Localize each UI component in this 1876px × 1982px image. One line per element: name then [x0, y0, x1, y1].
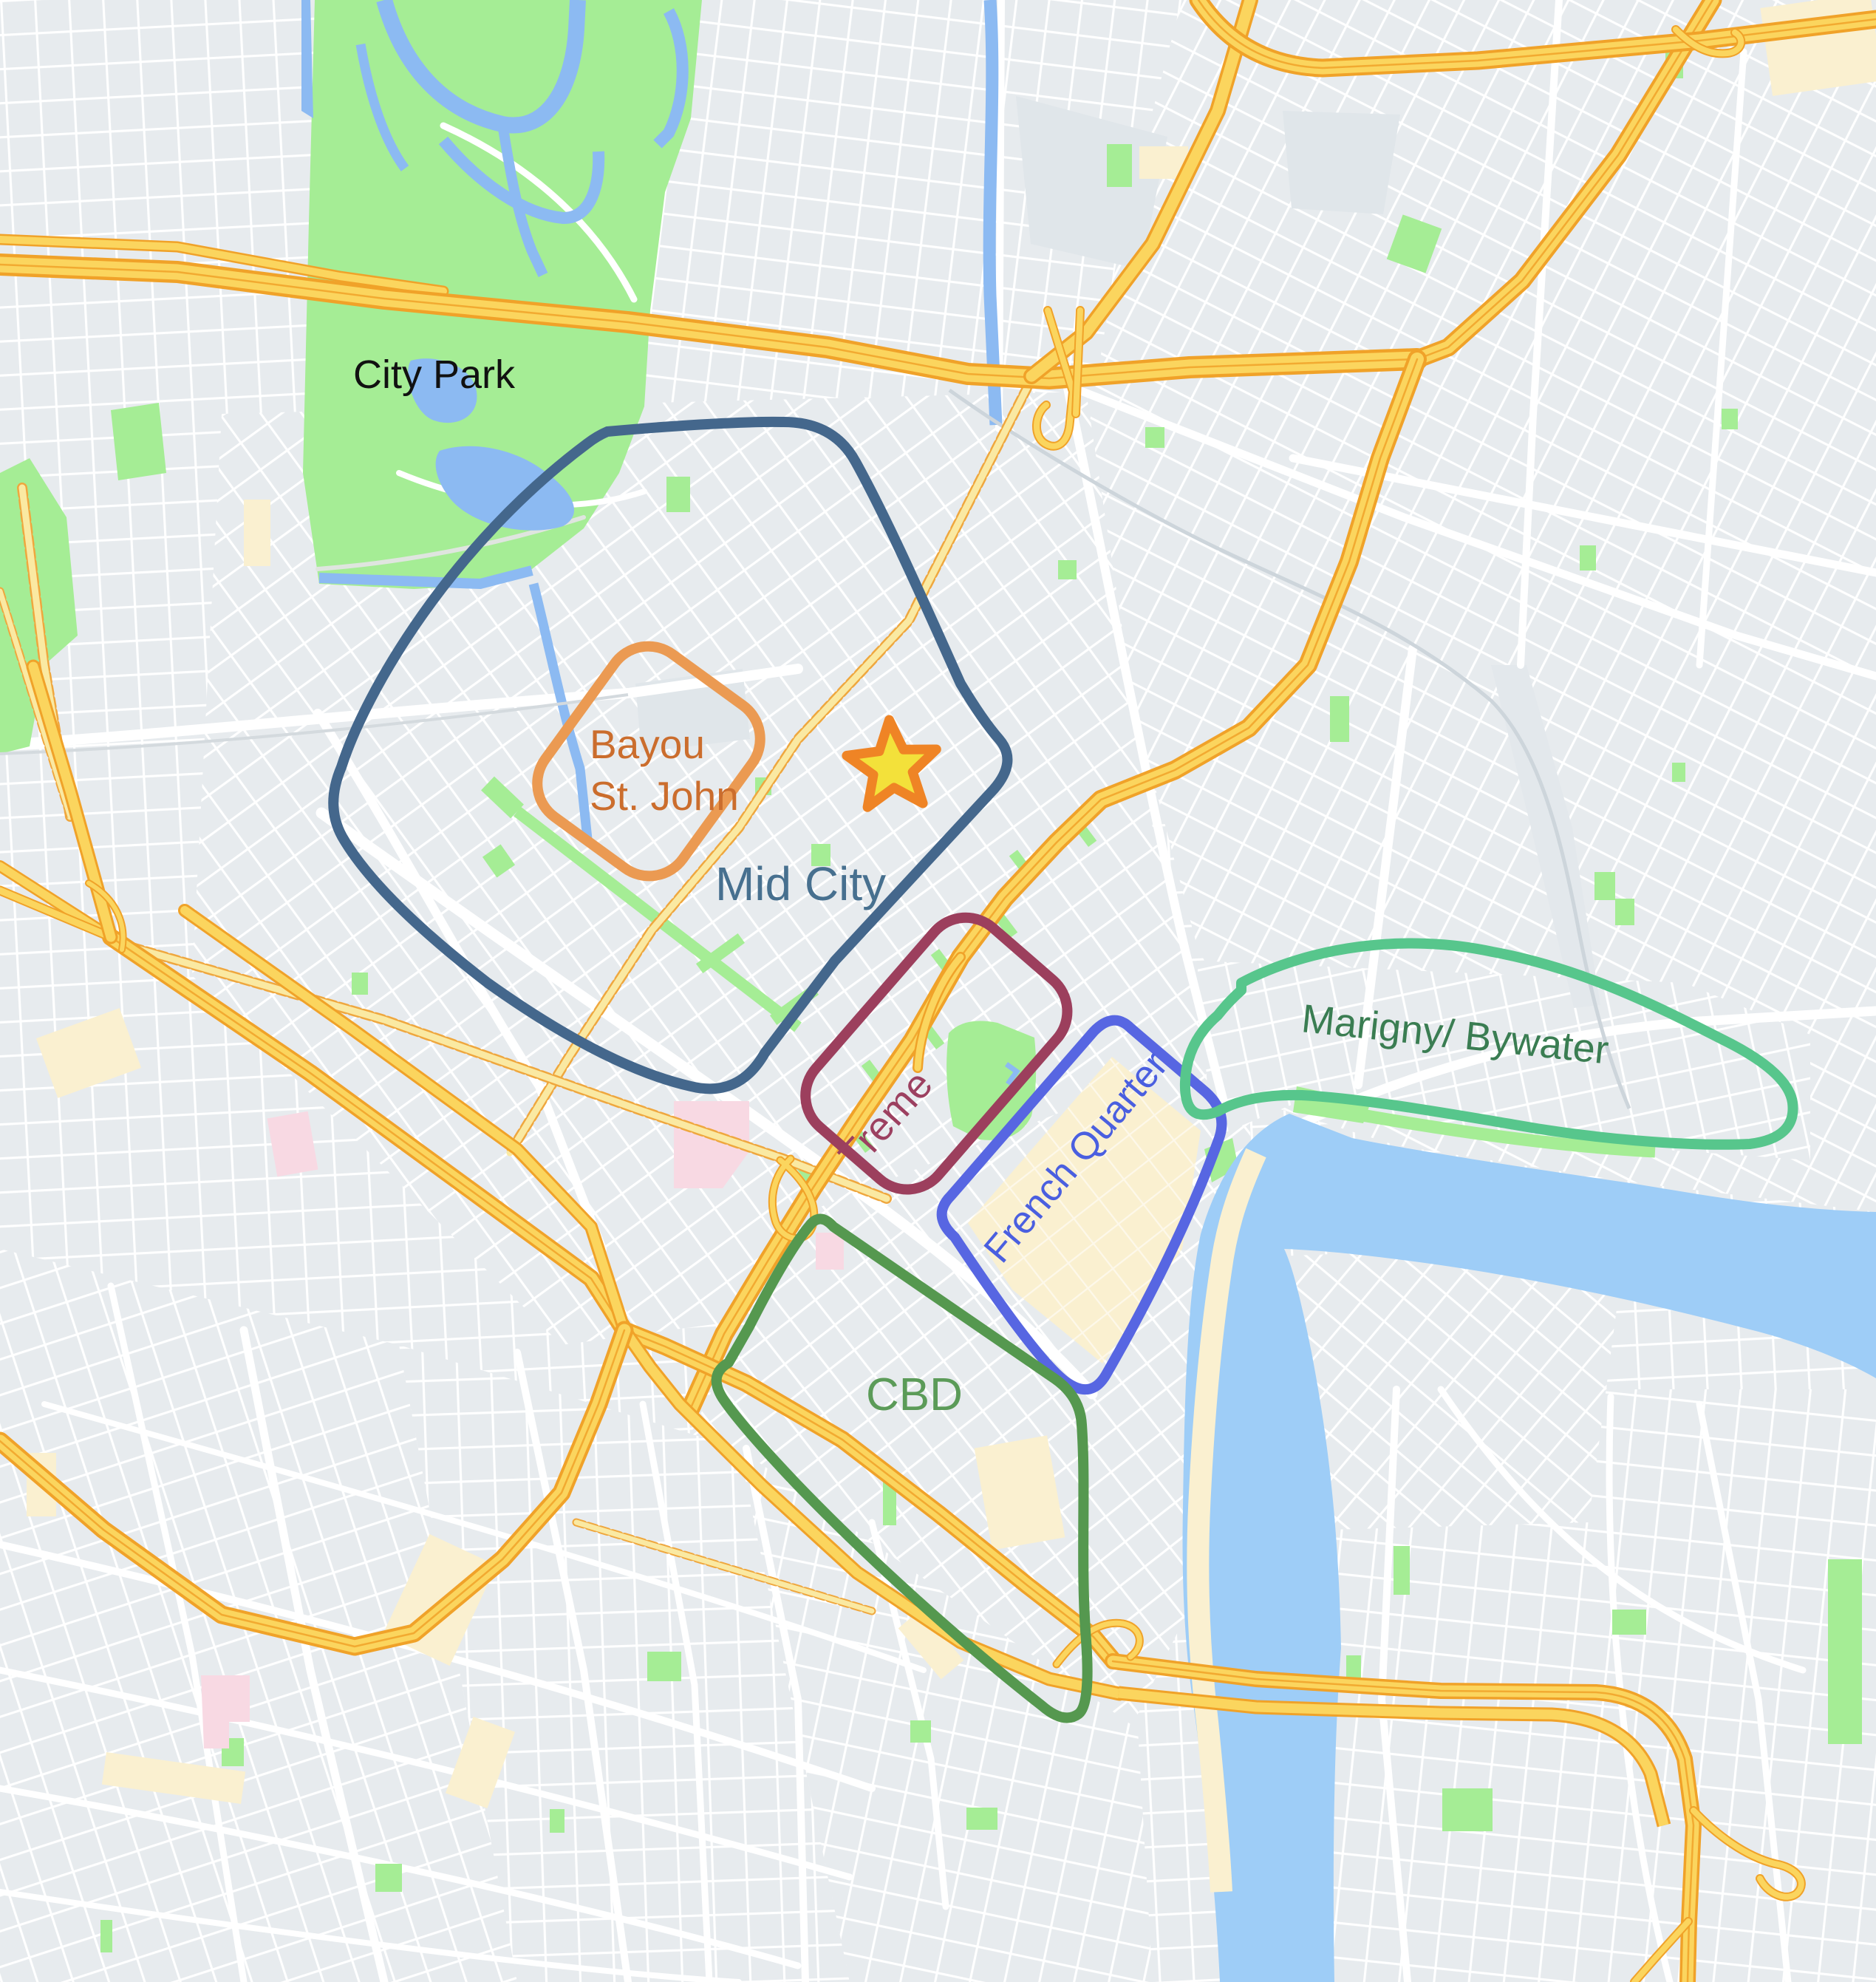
svg-text:Bayou: Bayou	[590, 721, 705, 767]
svg-text:St. John: St. John	[590, 773, 739, 819]
svg-text:Mid City: Mid City	[715, 857, 886, 910]
svg-text:CBD: CBD	[866, 1369, 963, 1420]
svg-text:City Park: City Park	[353, 353, 516, 397]
